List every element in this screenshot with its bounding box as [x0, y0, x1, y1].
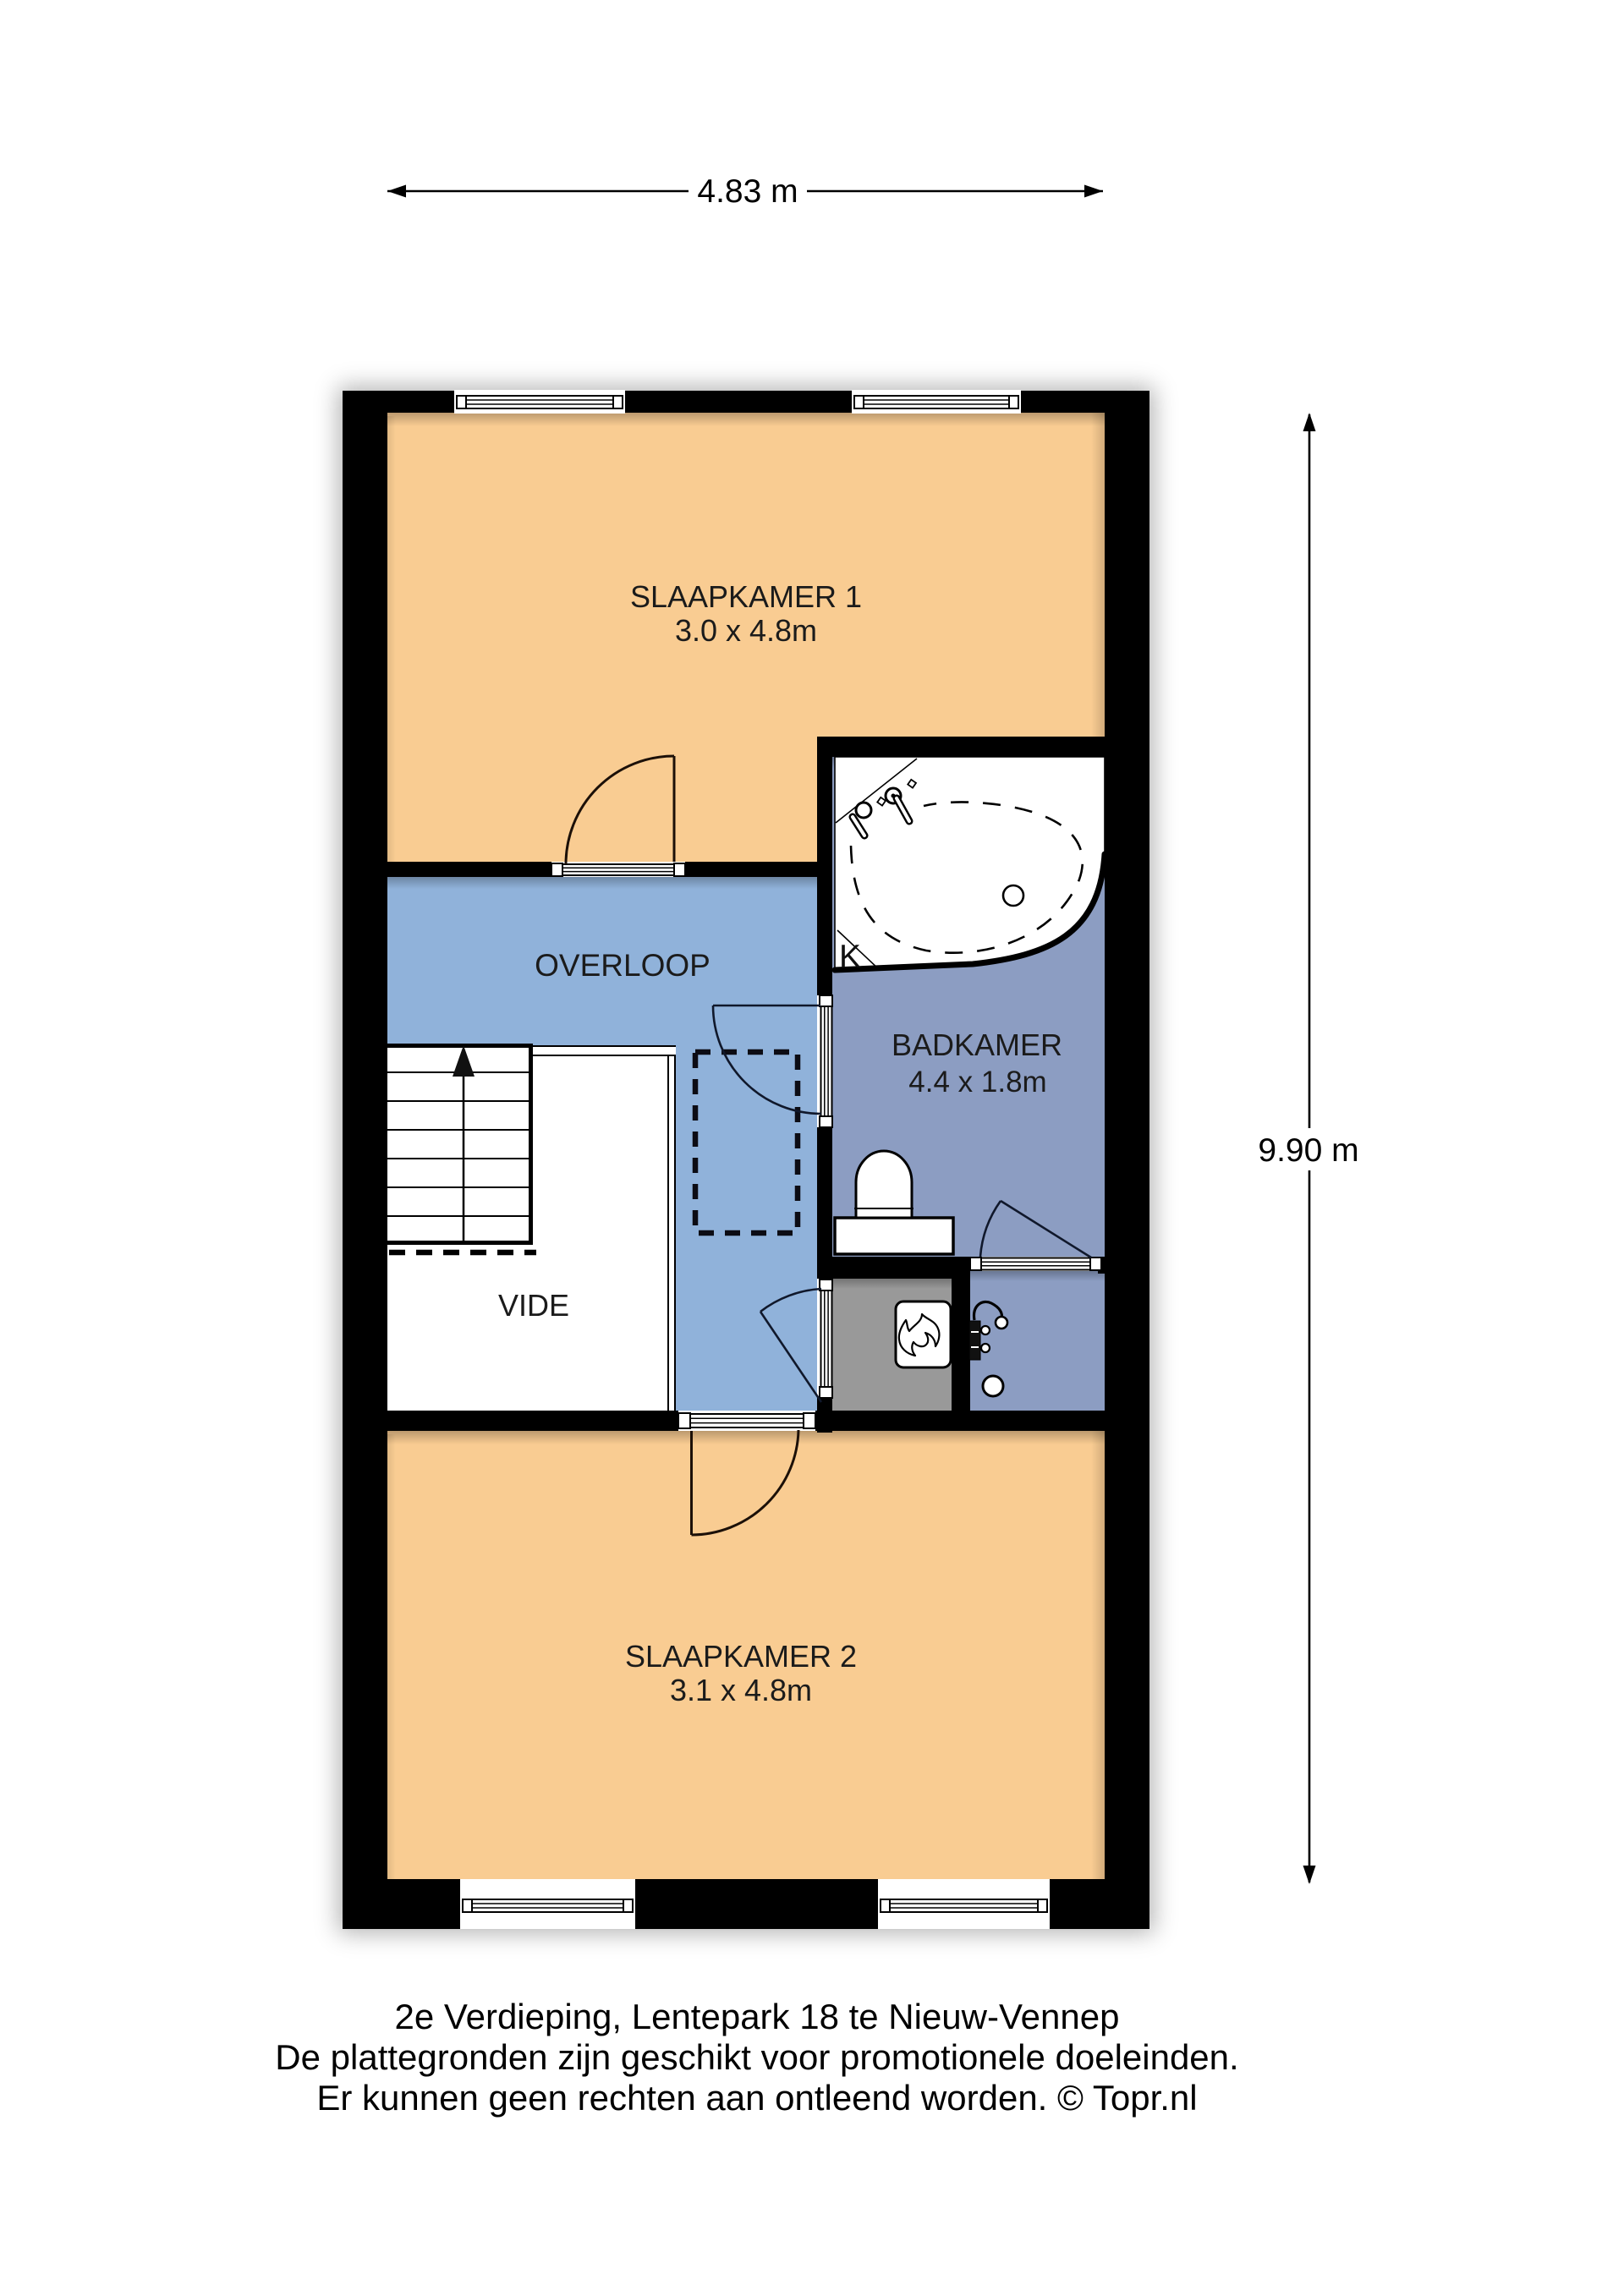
svg-text:2e Verdieping, Lentepark 18 te: 2e Verdieping, Lentepark 18 te Nieuw-Ven… — [395, 1997, 1120, 2036]
svg-text:BADKAMER: BADKAMER — [892, 1027, 1062, 1062]
svg-text:SLAAPKAMER 1: SLAAPKAMER 1 — [630, 579, 862, 614]
svg-text:Er kunnen geen rechten aan ont: Er kunnen geen rechten aan ontleend word… — [316, 2078, 1197, 2118]
svg-text:OVERLOOP: OVERLOOP — [535, 948, 710, 983]
svg-text:K: K — [839, 939, 861, 975]
svg-text:De plattegronden zijn geschikt: De plattegronden zijn geschikt voor prom… — [275, 2037, 1238, 2077]
svg-text:VIDE: VIDE — [498, 1288, 569, 1323]
svg-text:3.1 x 4.8m: 3.1 x 4.8m — [670, 1673, 812, 1707]
svg-text:3.0 x 4.8m: 3.0 x 4.8m — [675, 613, 817, 648]
svg-text:4.83 m: 4.83 m — [697, 173, 798, 210]
svg-text:SLAAPKAMER 2: SLAAPKAMER 2 — [625, 1639, 857, 1674]
svg-text:9.90 m: 9.90 m — [1258, 1132, 1358, 1169]
svg-text:4.4 x 1.8m: 4.4 x 1.8m — [908, 1066, 1046, 1099]
